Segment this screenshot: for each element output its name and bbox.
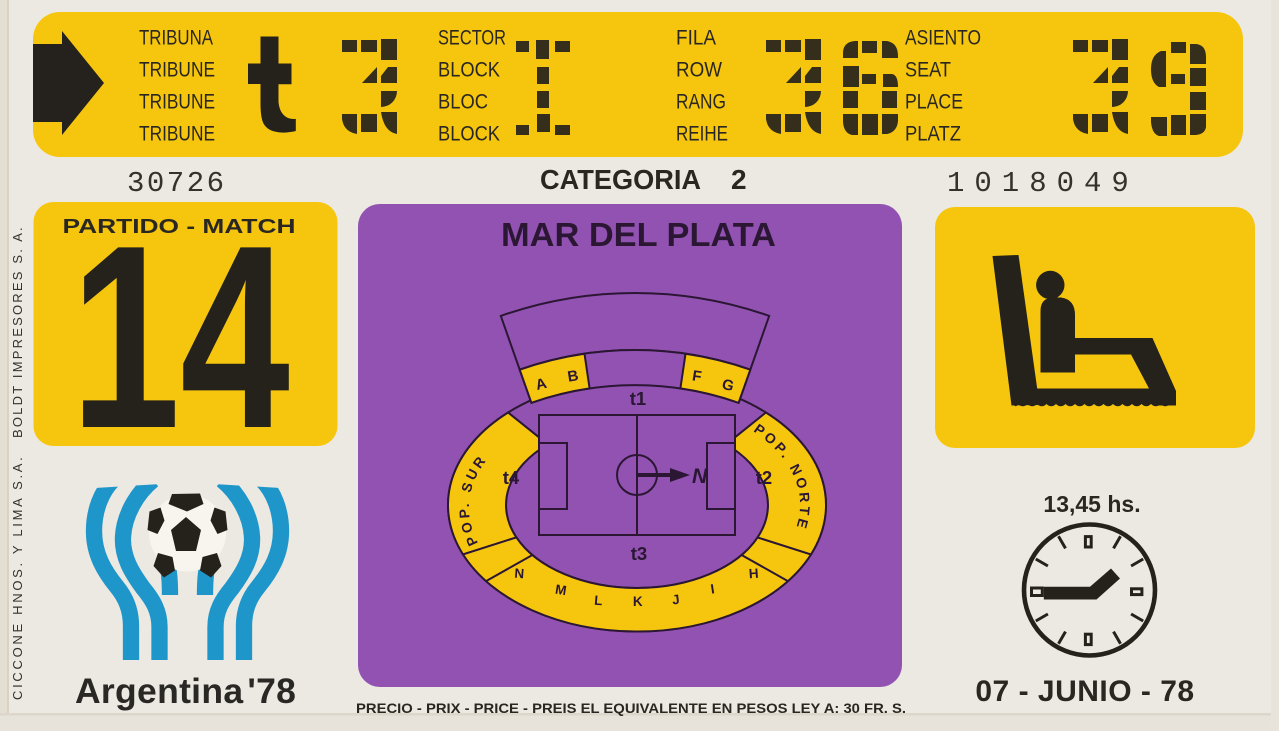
- svg-text:SECTOR: SECTOR: [438, 27, 506, 50]
- svg-text:CATEGORIA: CATEGORIA: [540, 164, 701, 195]
- svg-text:REIHE: REIHE: [676, 123, 728, 146]
- svg-text:RANG: RANG: [676, 91, 726, 114]
- svg-text:MAR DEL PLATA: MAR DEL PLATA: [501, 216, 776, 253]
- svg-text:PLACE: PLACE: [905, 91, 963, 114]
- svg-text:2: 2: [731, 164, 747, 195]
- svg-text:BLOCK: BLOCK: [438, 59, 500, 82]
- svg-text:TRIBUNE: TRIBUNE: [139, 91, 215, 114]
- svg-text:t2: t2: [756, 467, 772, 488]
- svg-text:14: 14: [71, 192, 290, 483]
- svg-text:ROW: ROW: [676, 59, 722, 82]
- svg-text:BOLDT IMPRESORES S. A.: BOLDT IMPRESORES S. A.: [10, 225, 25, 438]
- svg-text:N: N: [692, 465, 708, 488]
- svg-text:L: L: [594, 593, 604, 609]
- svg-text:t4: t4: [503, 467, 520, 488]
- svg-text:TRIBUNE: TRIBUNE: [139, 59, 215, 82]
- svg-text:N: N: [514, 566, 525, 582]
- svg-text:M: M: [554, 582, 567, 599]
- svg-text:FILA: FILA: [676, 27, 716, 50]
- svg-text:H: H: [748, 566, 759, 582]
- svg-text:1018049: 1018049: [947, 167, 1139, 200]
- svg-text:BLOCK: BLOCK: [438, 123, 500, 146]
- svg-text:13,45 hs.: 13,45 hs.: [1043, 491, 1140, 517]
- svg-text:07 - JUNIO - 78: 07 - JUNIO - 78: [975, 675, 1194, 708]
- svg-text:ASIENTO: ASIENTO: [905, 27, 981, 50]
- svg-text:SEAT: SEAT: [905, 59, 951, 82]
- svg-text:Argentina'78: Argentina'78: [75, 671, 296, 711]
- svg-text:t3: t3: [631, 543, 647, 564]
- svg-text:t1: t1: [630, 388, 646, 409]
- svg-text:TRIBUNE: TRIBUNE: [139, 123, 215, 146]
- svg-text:K: K: [633, 594, 643, 609]
- svg-text:TRIBUNA: TRIBUNA: [139, 27, 213, 50]
- svg-text:BLOC: BLOC: [438, 91, 488, 114]
- svg-text:CICCONE HNOS. Y LIMA S.A.: CICCONE HNOS. Y LIMA S.A.: [10, 455, 25, 700]
- svg-text:PLATZ: PLATZ: [905, 123, 961, 146]
- svg-text:PRECIO - PRIX - PRICE - PREIS: PRECIO - PRIX - PRICE - PREIS EL EQUIVAL…: [356, 700, 906, 716]
